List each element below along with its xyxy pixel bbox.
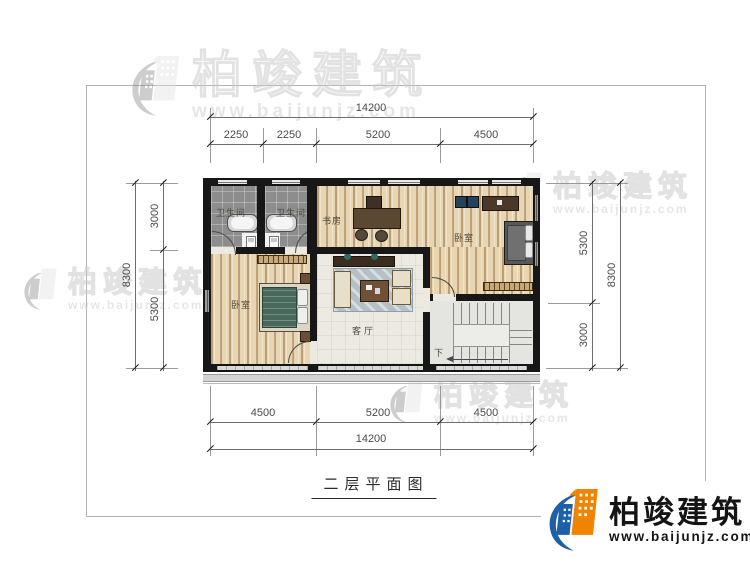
dim-label: 5300 bbox=[578, 231, 590, 255]
dim-label: 5200 bbox=[366, 129, 390, 141]
brand-text: 柏竣建筑 www.baijunjz.com bbox=[609, 497, 750, 545]
window bbox=[492, 178, 521, 186]
stair-treads-lower bbox=[453, 347, 510, 363]
watermark-text: 柏竣建筑 www.baijunjz.com bbox=[68, 269, 208, 313]
dim-label: 4500 bbox=[474, 407, 498, 419]
floorplan-page: { "meta": { "caption": "二层平面图" }, "brand… bbox=[0, 0, 750, 563]
stair-direction-label: 下 bbox=[434, 346, 444, 359]
wall bbox=[308, 364, 318, 372]
dim-label: 4500 bbox=[474, 129, 498, 141]
room-label-bathroom-left: 卫生间 bbox=[216, 206, 246, 219]
watermark-title: 柏竣建筑 bbox=[68, 269, 208, 298]
watermark-title: 柏竣建筑 bbox=[192, 50, 432, 100]
dim-label: 8300 bbox=[606, 263, 618, 287]
brand-website: www.baijunjz.com bbox=[609, 529, 750, 544]
stair-arrow-line bbox=[452, 359, 508, 360]
brand-name: 柏竣建筑 bbox=[609, 497, 750, 530]
plan-title: 二层平面图 bbox=[311, 473, 436, 499]
dim-line bbox=[210, 144, 533, 145]
dim-line bbox=[210, 422, 533, 423]
dim-label: 3000 bbox=[149, 204, 161, 228]
pillow bbox=[525, 242, 533, 258]
window bbox=[318, 364, 423, 372]
sofa bbox=[334, 271, 351, 308]
stool bbox=[467, 196, 479, 208]
stairs-down-arrow-icon bbox=[446, 356, 453, 362]
room-label-bedroom-left: 卧室 bbox=[231, 298, 251, 311]
dim-line bbox=[135, 181, 136, 371]
bed-cover bbox=[262, 287, 297, 328]
watermark-logo-icon bbox=[20, 264, 60, 317]
brand-logo-icon bbox=[543, 483, 603, 558]
watermark-url: www.baijunjz.com bbox=[553, 202, 693, 217]
wall bbox=[310, 254, 317, 341]
dim-label: 14200 bbox=[356, 102, 387, 114]
watermark-url: www.baijunjz.com bbox=[192, 100, 432, 124]
dim-line bbox=[592, 181, 593, 371]
study-desk bbox=[353, 208, 401, 229]
wall bbox=[265, 247, 285, 254]
dim-line bbox=[620, 181, 621, 371]
wall bbox=[423, 364, 436, 372]
plant bbox=[344, 253, 351, 260]
dim-label: 2250 bbox=[224, 129, 248, 141]
wall bbox=[257, 178, 265, 254]
watermark: 柏竣建筑 www.baijunjz.com bbox=[20, 264, 208, 317]
wall bbox=[423, 312, 430, 372]
dim-label: 3000 bbox=[578, 323, 590, 347]
wall bbox=[203, 364, 217, 372]
wall bbox=[203, 178, 211, 372]
bed-mattress bbox=[507, 225, 526, 261]
console-table bbox=[333, 256, 395, 267]
window bbox=[218, 178, 247, 186]
dim-line bbox=[210, 117, 533, 118]
stool bbox=[455, 196, 467, 208]
watermark-text: 柏竣建筑 www.baijunjz.com bbox=[192, 50, 432, 124]
stair-treads-side bbox=[510, 326, 532, 345]
room-label-bathroom-right: 卫生间 bbox=[276, 206, 306, 219]
window bbox=[217, 364, 308, 372]
low-cabinet bbox=[483, 282, 533, 291]
watermark-title: 柏竣建筑 bbox=[434, 382, 574, 411]
wall bbox=[236, 247, 257, 254]
wall bbox=[317, 247, 430, 254]
window bbox=[436, 364, 527, 372]
table-item bbox=[375, 288, 380, 294]
wardrobe bbox=[257, 255, 307, 264]
dim-label: 5300 bbox=[149, 297, 161, 321]
eave-band bbox=[203, 374, 540, 382]
wall bbox=[527, 364, 540, 372]
watermark-url: www.baijunjz.com bbox=[68, 298, 208, 313]
table-item bbox=[366, 285, 372, 290]
brand-logo: 柏竣建筑 www.baijunjz.com bbox=[541, 481, 750, 560]
pillow bbox=[297, 307, 308, 324]
stair-landing bbox=[453, 324, 510, 347]
dresser-item bbox=[497, 200, 502, 205]
dim-label: 2250 bbox=[277, 129, 301, 141]
window bbox=[533, 195, 540, 221]
room-label-study: 书房 bbox=[322, 214, 342, 227]
wall bbox=[307, 178, 317, 254]
window bbox=[458, 178, 488, 186]
watermark-text: 柏竣建筑 www.baijunjz.com bbox=[434, 382, 574, 426]
pillow bbox=[525, 225, 533, 241]
dim-line bbox=[163, 181, 164, 371]
window bbox=[348, 178, 380, 186]
watermark-url: www.baijunjz.com bbox=[434, 411, 574, 426]
armchair bbox=[392, 288, 411, 305]
dim-line bbox=[210, 449, 533, 450]
pillow bbox=[297, 289, 308, 306]
dim-label: 4500 bbox=[251, 407, 275, 419]
study-chair bbox=[375, 230, 388, 242]
window bbox=[272, 178, 300, 186]
dim-label: 8300 bbox=[121, 263, 133, 287]
room-label-bedroom-right: 卧室 bbox=[454, 231, 474, 244]
wall bbox=[430, 294, 433, 301]
wall bbox=[423, 247, 430, 288]
wall bbox=[456, 294, 533, 301]
window bbox=[388, 178, 420, 186]
window bbox=[203, 290, 211, 312]
eave-line bbox=[203, 383, 540, 384]
dim-label: 5200 bbox=[366, 407, 390, 419]
floor-plan: 下 卫生间 卫生间 书房 卧室 卧室 客厅 bbox=[203, 178, 540, 372]
room-label-living: 客厅 bbox=[352, 324, 376, 337]
dim-label: 14200 bbox=[356, 433, 387, 445]
plant bbox=[371, 253, 378, 260]
window bbox=[533, 242, 540, 266]
stair-treads-upper bbox=[453, 303, 510, 324]
watermark-logo-icon bbox=[126, 50, 184, 123]
study-chair bbox=[355, 229, 368, 241]
armchair bbox=[392, 270, 411, 287]
watermark-title: 柏竣建筑 bbox=[553, 173, 693, 202]
